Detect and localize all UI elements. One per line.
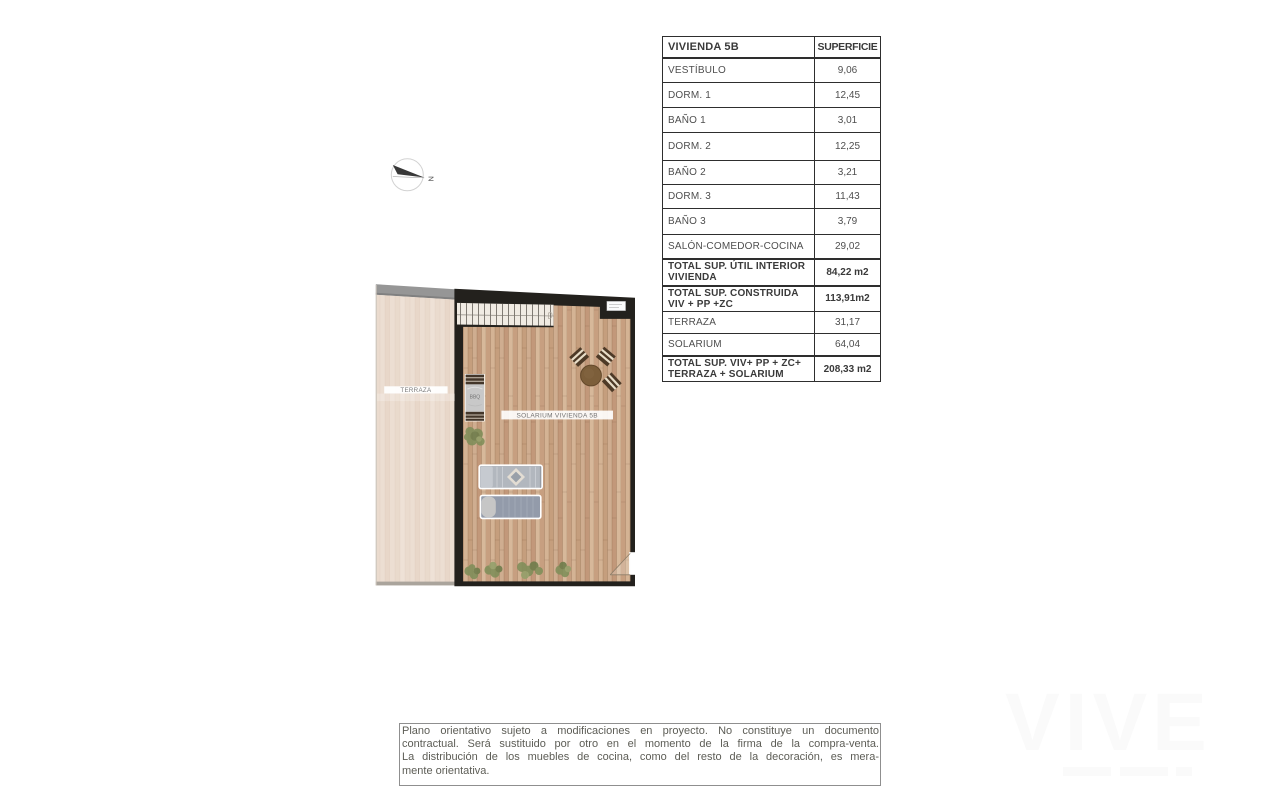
- svg-text:N: N: [426, 176, 435, 181]
- svg-text:TERRAZA: TERRAZA: [400, 387, 432, 394]
- svg-text:SOLARIUM VIVIENDA 5B: SOLARIUM VIVIENDA 5B: [516, 412, 598, 419]
- svg-text:BBQ: BBQ: [470, 395, 481, 401]
